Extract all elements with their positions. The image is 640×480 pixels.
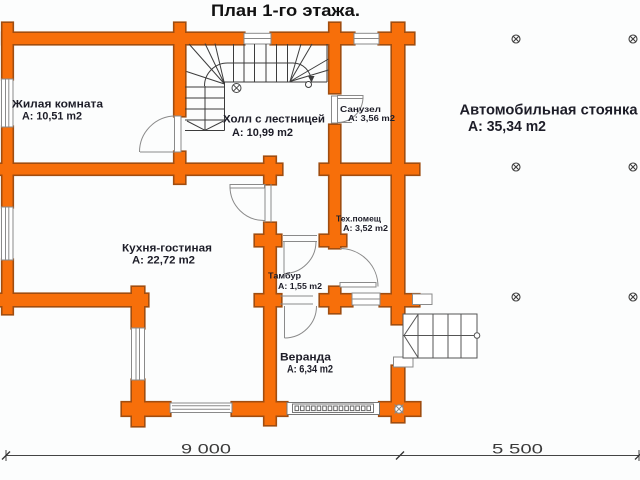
svg-text:А: 10,99 m2: А: 10,99 m2 xyxy=(232,127,293,139)
svg-text:А: 1,55 m2: А: 1,55 m2 xyxy=(278,282,323,291)
svg-text:Холл с лестницей: Холл с лестницей xyxy=(223,114,325,126)
svg-text:Тамбур: Тамбур xyxy=(268,272,301,281)
svg-text:Тех.помещ: Тех.помещ xyxy=(336,215,381,224)
svg-text:А: 3,52 m2: А: 3,52 m2 xyxy=(343,224,389,233)
svg-text:Санузел: Санузел xyxy=(340,105,381,114)
svg-text:Автомобильная стоянка: Автомобильная стоянка xyxy=(460,103,639,119)
svg-text:А: 3,56 m2: А: 3,56 m2 xyxy=(348,114,396,123)
svg-text:Жилая комната: Жилая комната xyxy=(11,98,104,110)
svg-text:Веранда: Веранда xyxy=(280,352,332,364)
svg-text:5 500: 5 500 xyxy=(492,442,543,457)
svg-text:План 1-го этажа.: План 1-го этажа. xyxy=(211,1,360,20)
svg-text:9 000: 9 000 xyxy=(181,442,231,457)
svg-text:А: 6,34 m2: А: 6,34 m2 xyxy=(287,364,333,376)
svg-text:Кухня-гостиная: Кухня-гостиная xyxy=(122,243,212,255)
svg-text:А: 35,34 m2: А: 35,34 m2 xyxy=(468,119,546,135)
svg-text:А: 22,72 m2: А: 22,72 m2 xyxy=(132,255,195,267)
svg-text:А: 10,51 m2: А: 10,51 m2 xyxy=(22,111,82,123)
